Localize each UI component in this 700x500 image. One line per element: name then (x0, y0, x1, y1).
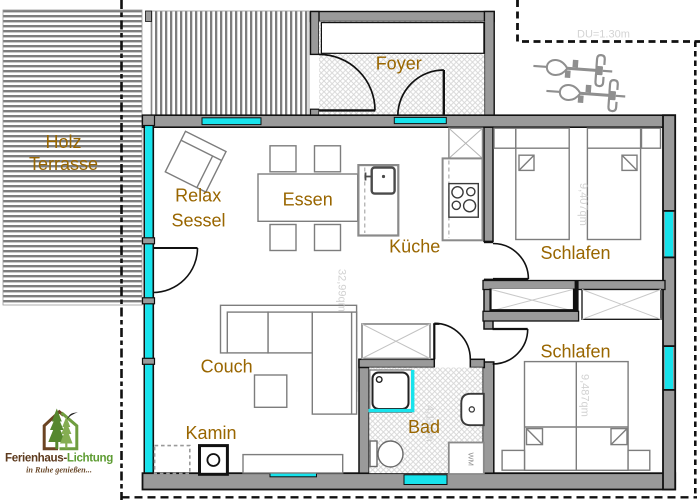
svg-text:Terrasse: Terrasse (29, 154, 98, 174)
svg-text:WM: WM (467, 453, 476, 466)
svg-text:Couch: Couch (201, 357, 253, 377)
svg-text:Essen: Essen (283, 190, 333, 210)
svg-text:Schlafen: Schlafen (540, 342, 610, 362)
svg-text:Bad: Bad (408, 417, 440, 437)
svg-text:Foyer: Foyer (376, 54, 422, 74)
svg-text:Küche: Küche (389, 237, 440, 257)
svg-text:Sessel: Sessel (171, 211, 225, 231)
svg-text:9,407qm: 9,407qm (577, 183, 589, 226)
svg-text:in Ruhe genießen...: in Ruhe genießen... (26, 465, 92, 474)
svg-text:DU=1.30m: DU=1.30m (577, 29, 630, 41)
svg-text:Holz: Holz (45, 132, 81, 152)
svg-text:Schlafen: Schlafen (540, 243, 610, 263)
svg-text:Ferienhaus-Lichtung: Ferienhaus-Lichtung (5, 452, 113, 465)
svg-text:Relax: Relax (175, 186, 221, 206)
svg-text:9,487qm: 9,487qm (579, 374, 591, 417)
svg-text:32,99qm: 32,99qm (336, 269, 348, 312)
svg-text:Kamin: Kamin (185, 423, 236, 443)
